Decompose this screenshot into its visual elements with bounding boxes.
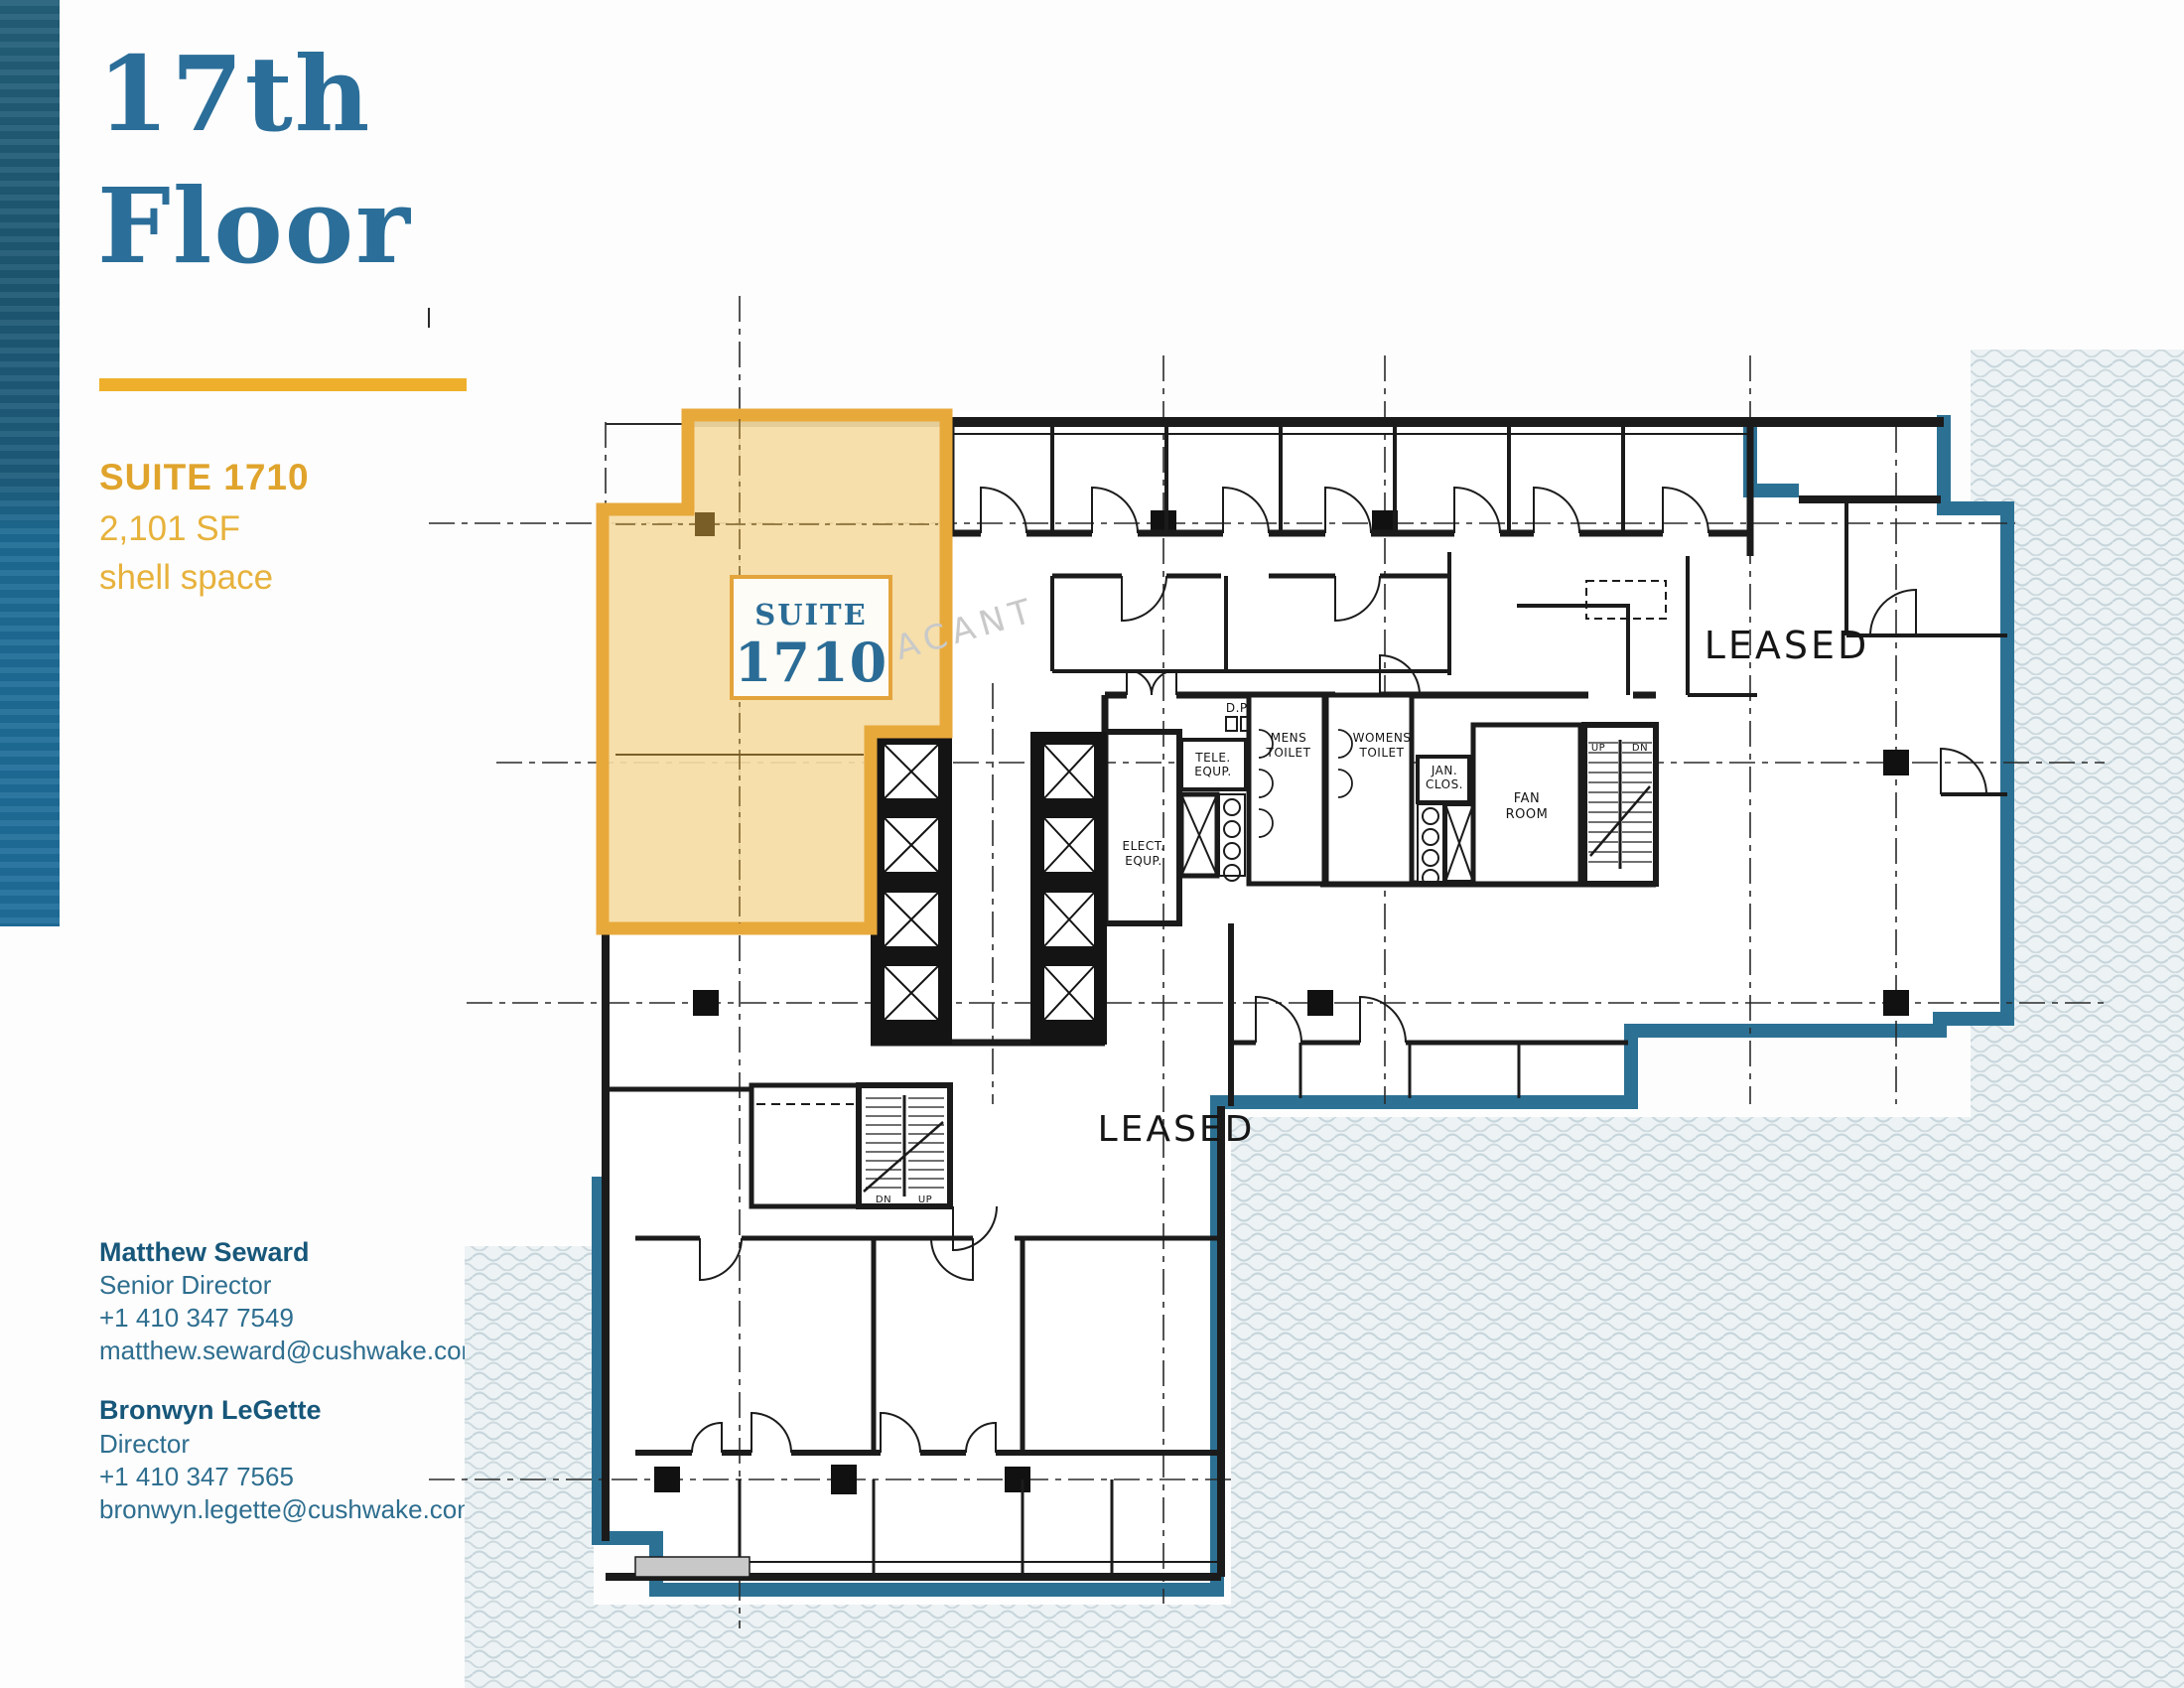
elevator-bank-left: [871, 732, 952, 1045]
tele-equip-1: TELE.: [1194, 751, 1231, 765]
mens-toilet-1: MENS: [1271, 731, 1307, 745]
womens-toilet-1: WOMENS: [1353, 731, 1412, 745]
tele-equip-2: EQUP.: [1194, 765, 1232, 778]
leased-center-label: LEASED: [1098, 1109, 1256, 1150]
hatched-strip: [635, 1557, 750, 1577]
suite-label-line2: 1710: [735, 631, 887, 694]
jan-clos-2: CLOS.: [1426, 777, 1463, 791]
stair-up-label: UP: [1591, 743, 1605, 754]
womens-toilet-2: TOILET: [1359, 746, 1405, 760]
leased-right-label: LEASED: [1705, 624, 1870, 667]
shafts-and-chases: [1181, 695, 1580, 886]
elevator-bank-right: [1030, 732, 1107, 1045]
stairwell-lower: [859, 1085, 950, 1206]
suite-label-line1: SUITE: [754, 598, 867, 632]
fan-room-2: ROOM: [1506, 807, 1549, 822]
elect-equip-2: EQUP.: [1125, 854, 1162, 868]
stair2-up-label: UP: [918, 1195, 932, 1205]
dp-label: D.P.: [1226, 701, 1250, 715]
suite-column: [695, 512, 715, 536]
fan-room-1: FAN: [1514, 791, 1540, 806]
suite-label-box[interactable]: SUITE 1710: [732, 577, 890, 698]
flyer-page: 17th Floor SUITE 1710 2,101 SF shell spa…: [0, 0, 2184, 1688]
stair-dn-label: DN: [1632, 743, 1648, 754]
floor-plan: VACANT SUITE 1710 D.P. TELE. EQUP. MENS …: [0, 0, 2184, 1688]
grid-witness-ticks: [429, 308, 685, 424]
jan-clos-1: JAN.: [1431, 764, 1457, 777]
mens-toilet-2: TOILET: [1266, 746, 1311, 760]
elect-equip-1: ELECT.: [1123, 839, 1165, 853]
stair2-dn-label: DN: [876, 1195, 891, 1205]
